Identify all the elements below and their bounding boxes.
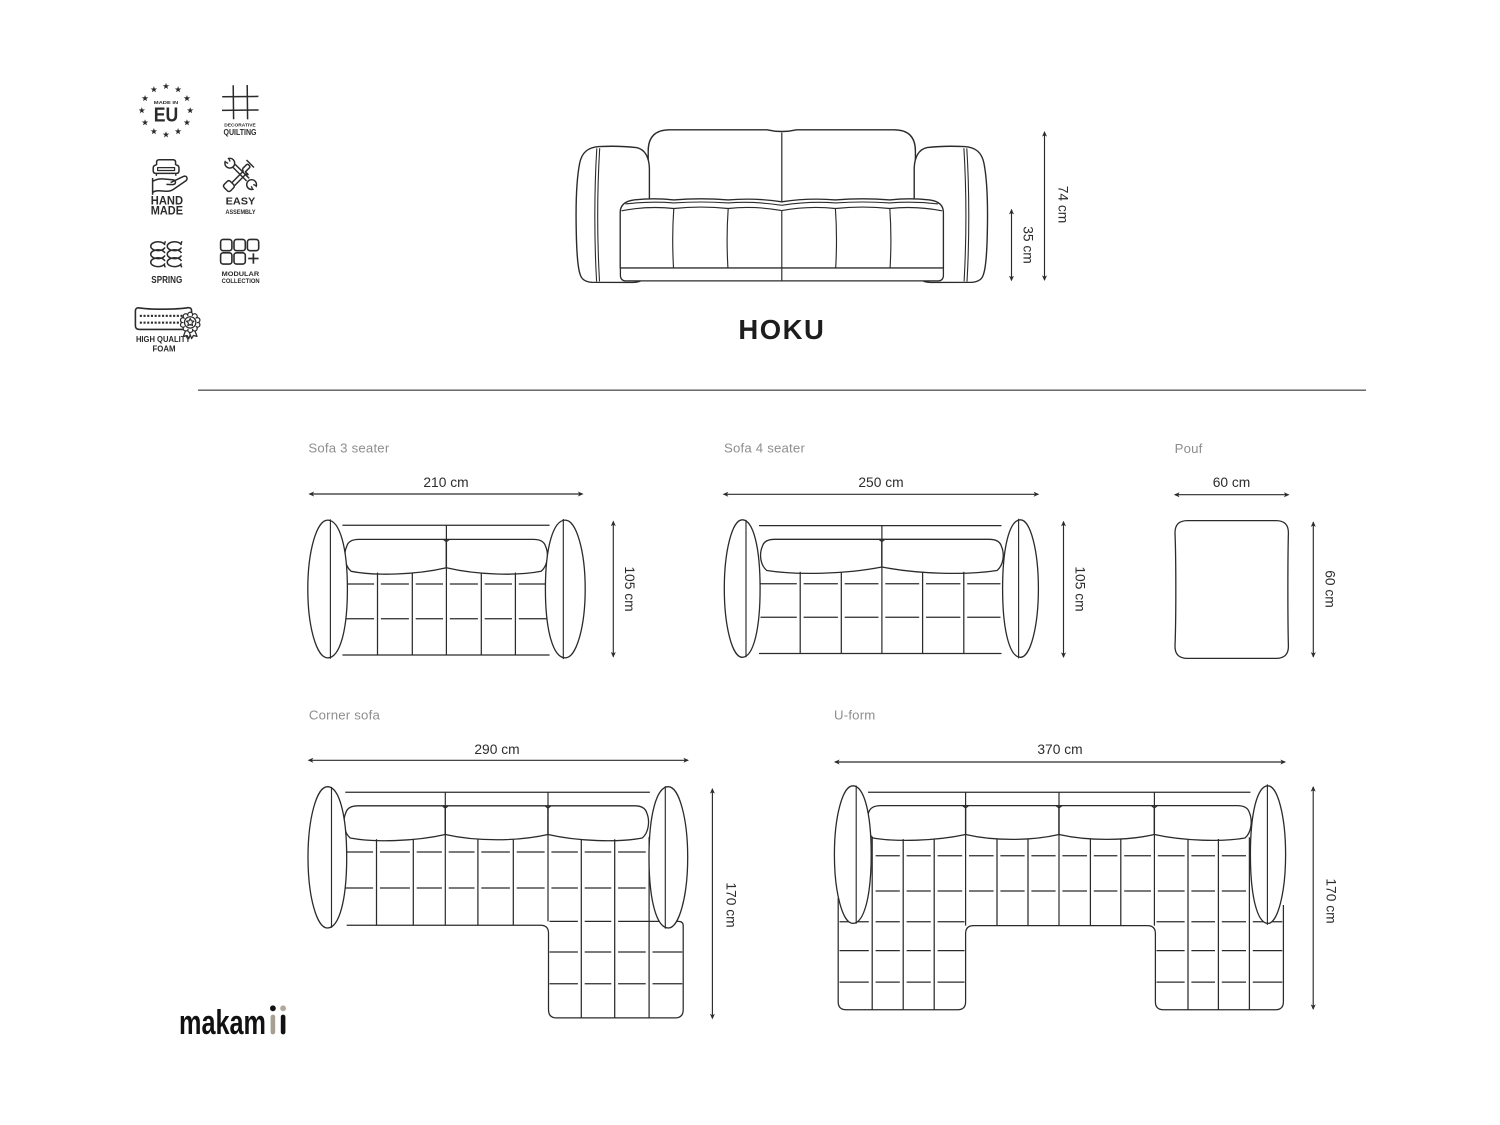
svg-text:370 cm: 370 cm [1037, 742, 1082, 757]
svg-text:105 cm: 105 cm [1073, 566, 1088, 611]
svg-text:ASSEMBLY: ASSEMBLY [226, 209, 257, 216]
svg-text:60 cm: 60 cm [1322, 570, 1337, 608]
svg-text:Pouf: Pouf [1175, 441, 1203, 456]
svg-text:Sofa 3 seater: Sofa 3 seater [308, 441, 389, 456]
svg-text:U-form: U-form [834, 707, 876, 722]
svg-text:35 cm: 35 cm [1021, 226, 1036, 264]
svg-text:170 cm: 170 cm [723, 882, 738, 927]
svg-text:74 cm: 74 cm [1056, 186, 1071, 224]
svg-text:Sofa 4 seater: Sofa 4 seater [724, 441, 805, 456]
svg-text:MODULAR: MODULAR [222, 271, 260, 278]
svg-text:60 cm: 60 cm [1213, 475, 1251, 490]
svg-text:170 cm: 170 cm [1324, 878, 1339, 923]
svg-text:COLLECTION: COLLECTION [222, 278, 260, 285]
svg-text:210 cm: 210 cm [423, 475, 468, 490]
svg-text:EU: EU [154, 104, 179, 127]
svg-text:QUILTING: QUILTING [224, 128, 257, 137]
svg-text:EASY: EASY [226, 196, 256, 207]
svg-text:HOKU: HOKU [738, 314, 825, 345]
svg-text:FOAM: FOAM [153, 344, 176, 354]
svg-text:105 cm: 105 cm [622, 566, 637, 611]
svg-text:250 cm: 250 cm [858, 475, 903, 490]
svg-text:MADE: MADE [151, 205, 183, 218]
svg-text:SPRING: SPRING [151, 275, 182, 286]
svg-text:DECORATIVE: DECORATIVE [224, 123, 256, 128]
svg-text:makam: makam [179, 1004, 266, 1042]
svg-text:290 cm: 290 cm [474, 742, 519, 757]
svg-text:Corner sofa: Corner sofa [309, 707, 381, 722]
